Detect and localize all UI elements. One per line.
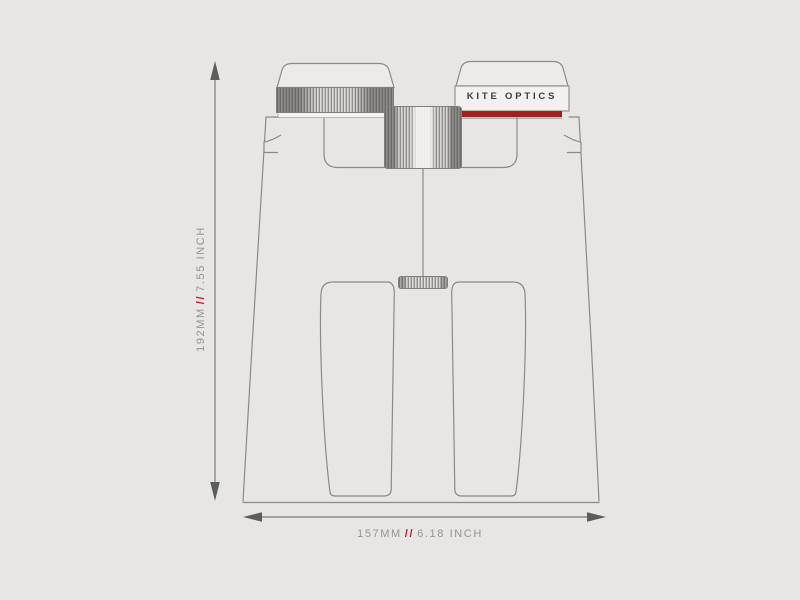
hinge-knurl: [398, 276, 448, 289]
brand-label-text: KITE OPTICS: [467, 91, 557, 102]
right-strap-lug: [564, 135, 581, 153]
right-eyecup-cap: [456, 62, 568, 87]
height-inch-value: 7.55 INCH: [195, 226, 207, 292]
height-separator: //: [195, 292, 207, 307]
binocular-body-outline: [243, 117, 599, 503]
width-mm-value: 157MM: [357, 528, 402, 540]
height-dimension-label: 192MM//7.55 INCH: [195, 199, 207, 379]
right-arrow-icon: [587, 512, 606, 521]
left-eyecup-cap: [277, 64, 394, 88]
left-eyecup-knurl: [276, 87, 394, 113]
width-separator: //: [402, 528, 417, 540]
height-mm-value: 192MM: [195, 307, 207, 352]
left-strap-lug: [264, 135, 281, 153]
up-arrow-icon: [210, 61, 220, 80]
left-arrow-icon: [243, 512, 262, 521]
red-accent-stripe: [459, 111, 562, 117]
width-inch-value: 6.18 INCH: [417, 528, 483, 540]
focus-wheel: [384, 106, 462, 169]
binoculars-size-diagram: KITE OPTICS 192MM//7.55 INCH 157MM//6.18…: [0, 0, 800, 600]
down-arrow-icon: [210, 482, 220, 501]
brand-label: KITE OPTICS: [456, 91, 568, 102]
width-dimension-label: 157MM//6.18 INCH: [320, 528, 520, 540]
binoculars-line-drawing: [0, 0, 800, 600]
